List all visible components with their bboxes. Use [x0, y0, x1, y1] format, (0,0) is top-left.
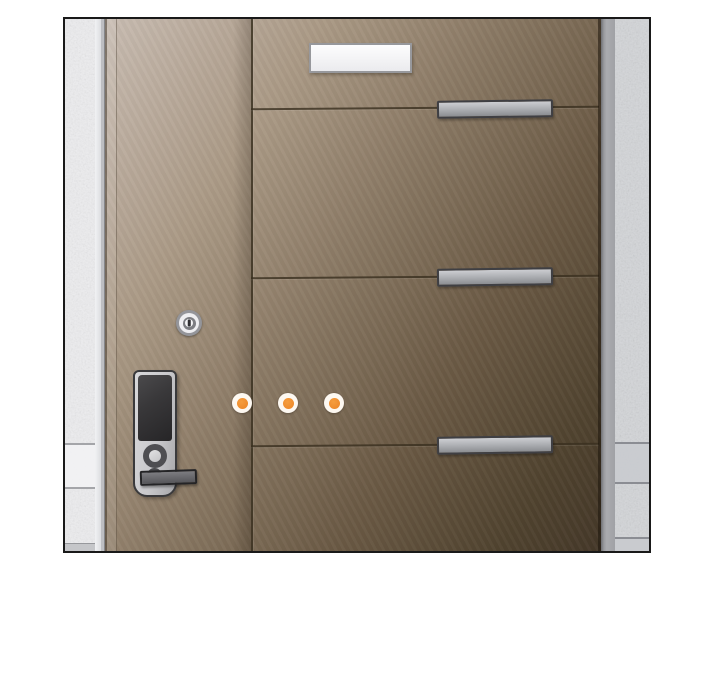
right-wall — [615, 19, 649, 551]
left-wall-tile-seam — [65, 487, 95, 489]
front-door — [105, 19, 601, 551]
left-wall-baseboard — [65, 543, 95, 552]
right-wall-tile-seam — [615, 442, 649, 444]
digital-door-lock — [133, 370, 177, 497]
lock-dial-core — [149, 450, 161, 462]
beep-dot-core — [329, 398, 340, 409]
door-hinge-stile — [105, 19, 117, 551]
handle-trim-bar-bottom — [437, 435, 553, 455]
left-wall-smooth-tile — [65, 443, 95, 487]
right-wall-smooth-tile — [615, 442, 649, 482]
beep-dot — [324, 393, 344, 413]
nameplate — [309, 43, 412, 73]
beep-dot-core — [237, 398, 248, 409]
right-wall-bottom-tile — [615, 537, 649, 553]
door-frame-right-strip — [601, 19, 615, 551]
beep-dot — [278, 393, 298, 413]
beep-dot-core — [283, 398, 294, 409]
key-cylinder — [176, 310, 202, 336]
comic-panel-page — [0, 0, 720, 700]
door-vertical-seam-shadow — [233, 19, 251, 551]
keyhole-slot-icon — [188, 320, 191, 327]
left-wall — [65, 19, 95, 551]
right-wall-tile-seam — [615, 482, 649, 484]
handle-trim-bar-middle — [437, 267, 553, 287]
key-cylinder-core — [185, 319, 193, 327]
handle-trim-bar-top — [437, 99, 553, 119]
key-cylinder-inner-ring — [183, 317, 196, 330]
lock-keypad-panel — [138, 375, 172, 441]
beep-dot — [232, 393, 252, 413]
left-wall-tile-seam — [65, 443, 95, 445]
door-vertical-seam-highlight — [253, 19, 254, 551]
lock-lever-handle — [140, 469, 197, 486]
key-cylinder-ring — [179, 313, 199, 333]
panel-frame — [63, 17, 651, 553]
lock-dial-button — [143, 444, 167, 468]
